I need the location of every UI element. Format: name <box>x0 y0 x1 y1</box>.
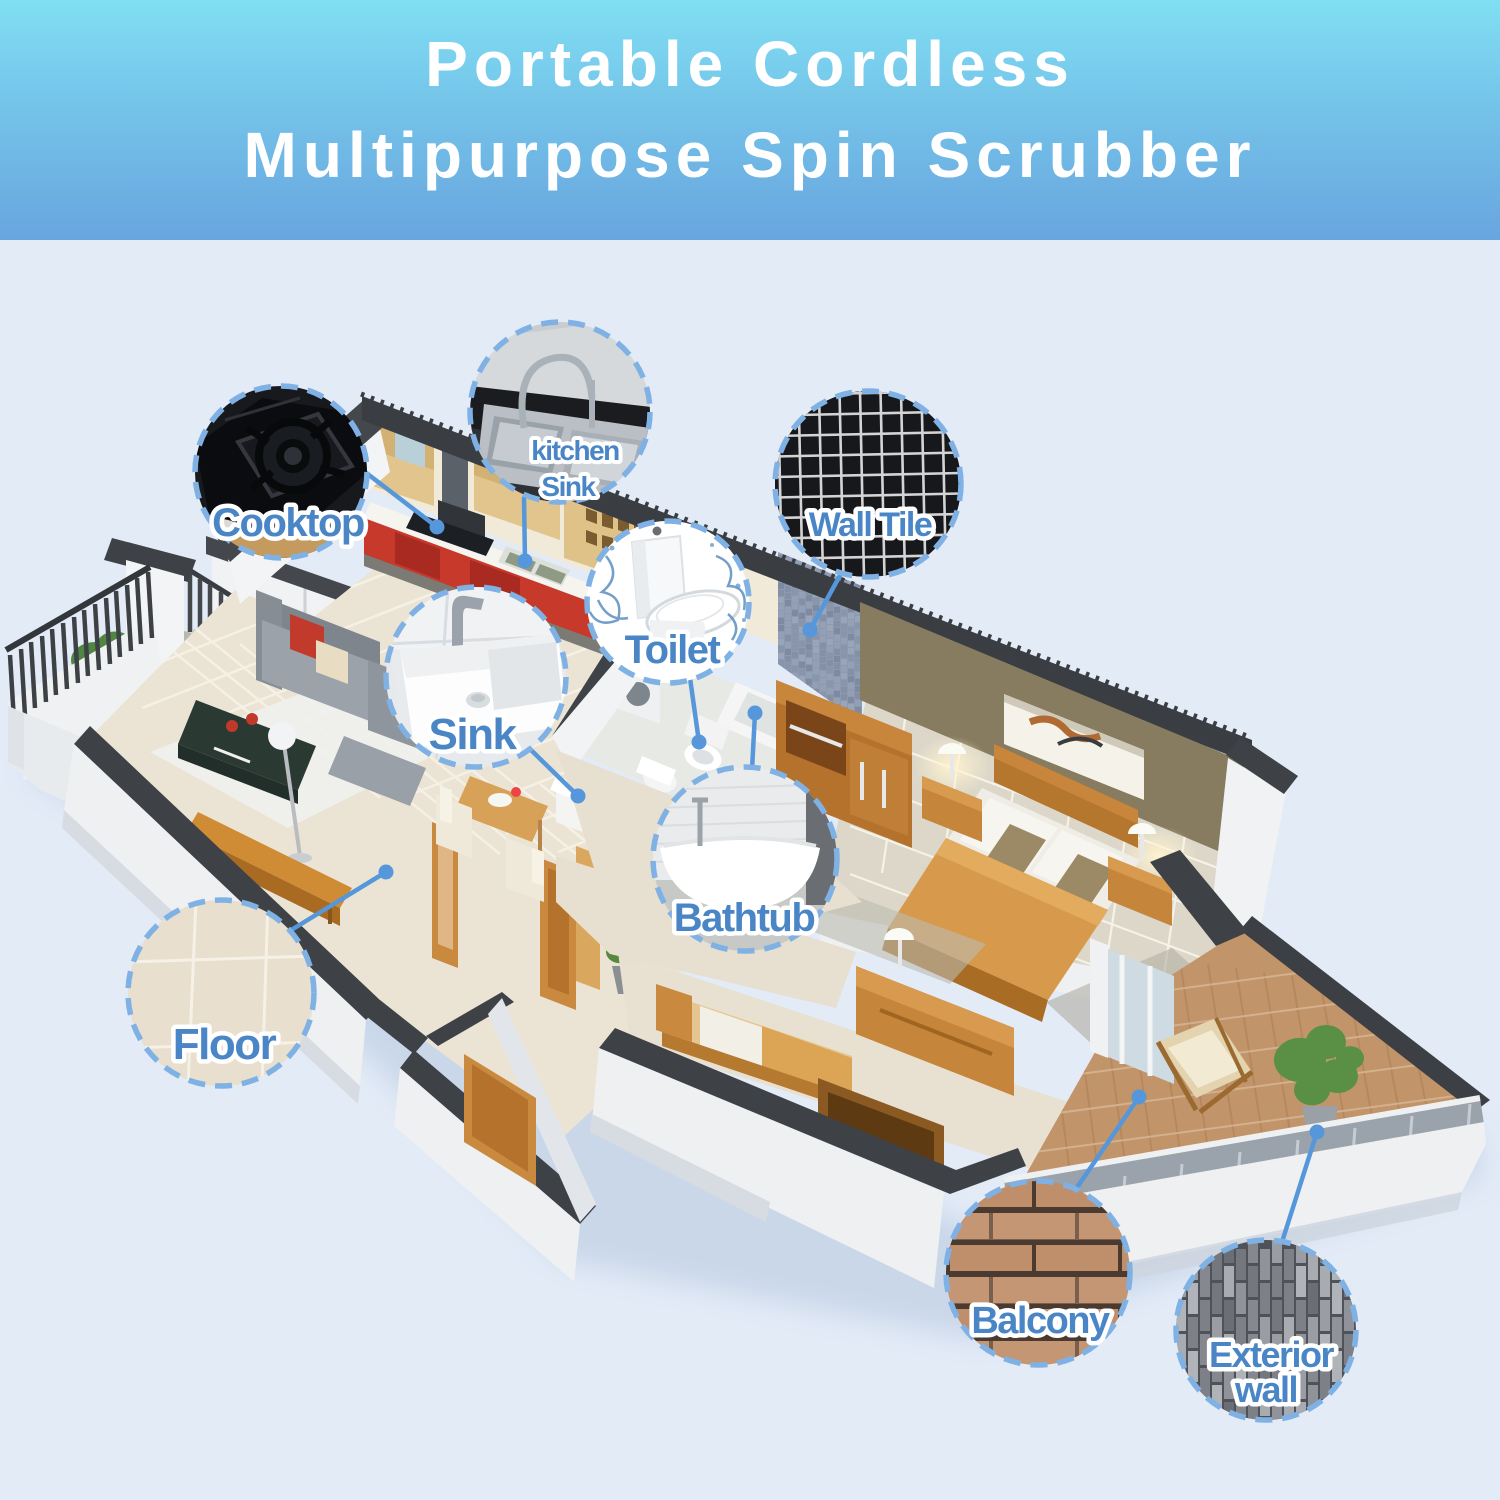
svg-text:Balcony: Balcony <box>971 1300 1110 1342</box>
svg-text:wall: wall <box>1234 1369 1297 1410</box>
svg-text:Sink: Sink <box>541 471 596 502</box>
svg-text:Floor: Floor <box>173 1020 277 1069</box>
svg-text:Sink: Sink <box>429 710 518 759</box>
svg-text:Toilet: Toilet <box>625 628 721 672</box>
svg-text:kitchen: kitchen <box>531 435 619 466</box>
svg-text:Wall Tile: Wall Tile <box>809 506 932 544</box>
svg-text:Cooktop: Cooktop <box>212 501 364 545</box>
svg-text:Bathtub: Bathtub <box>674 896 815 940</box>
